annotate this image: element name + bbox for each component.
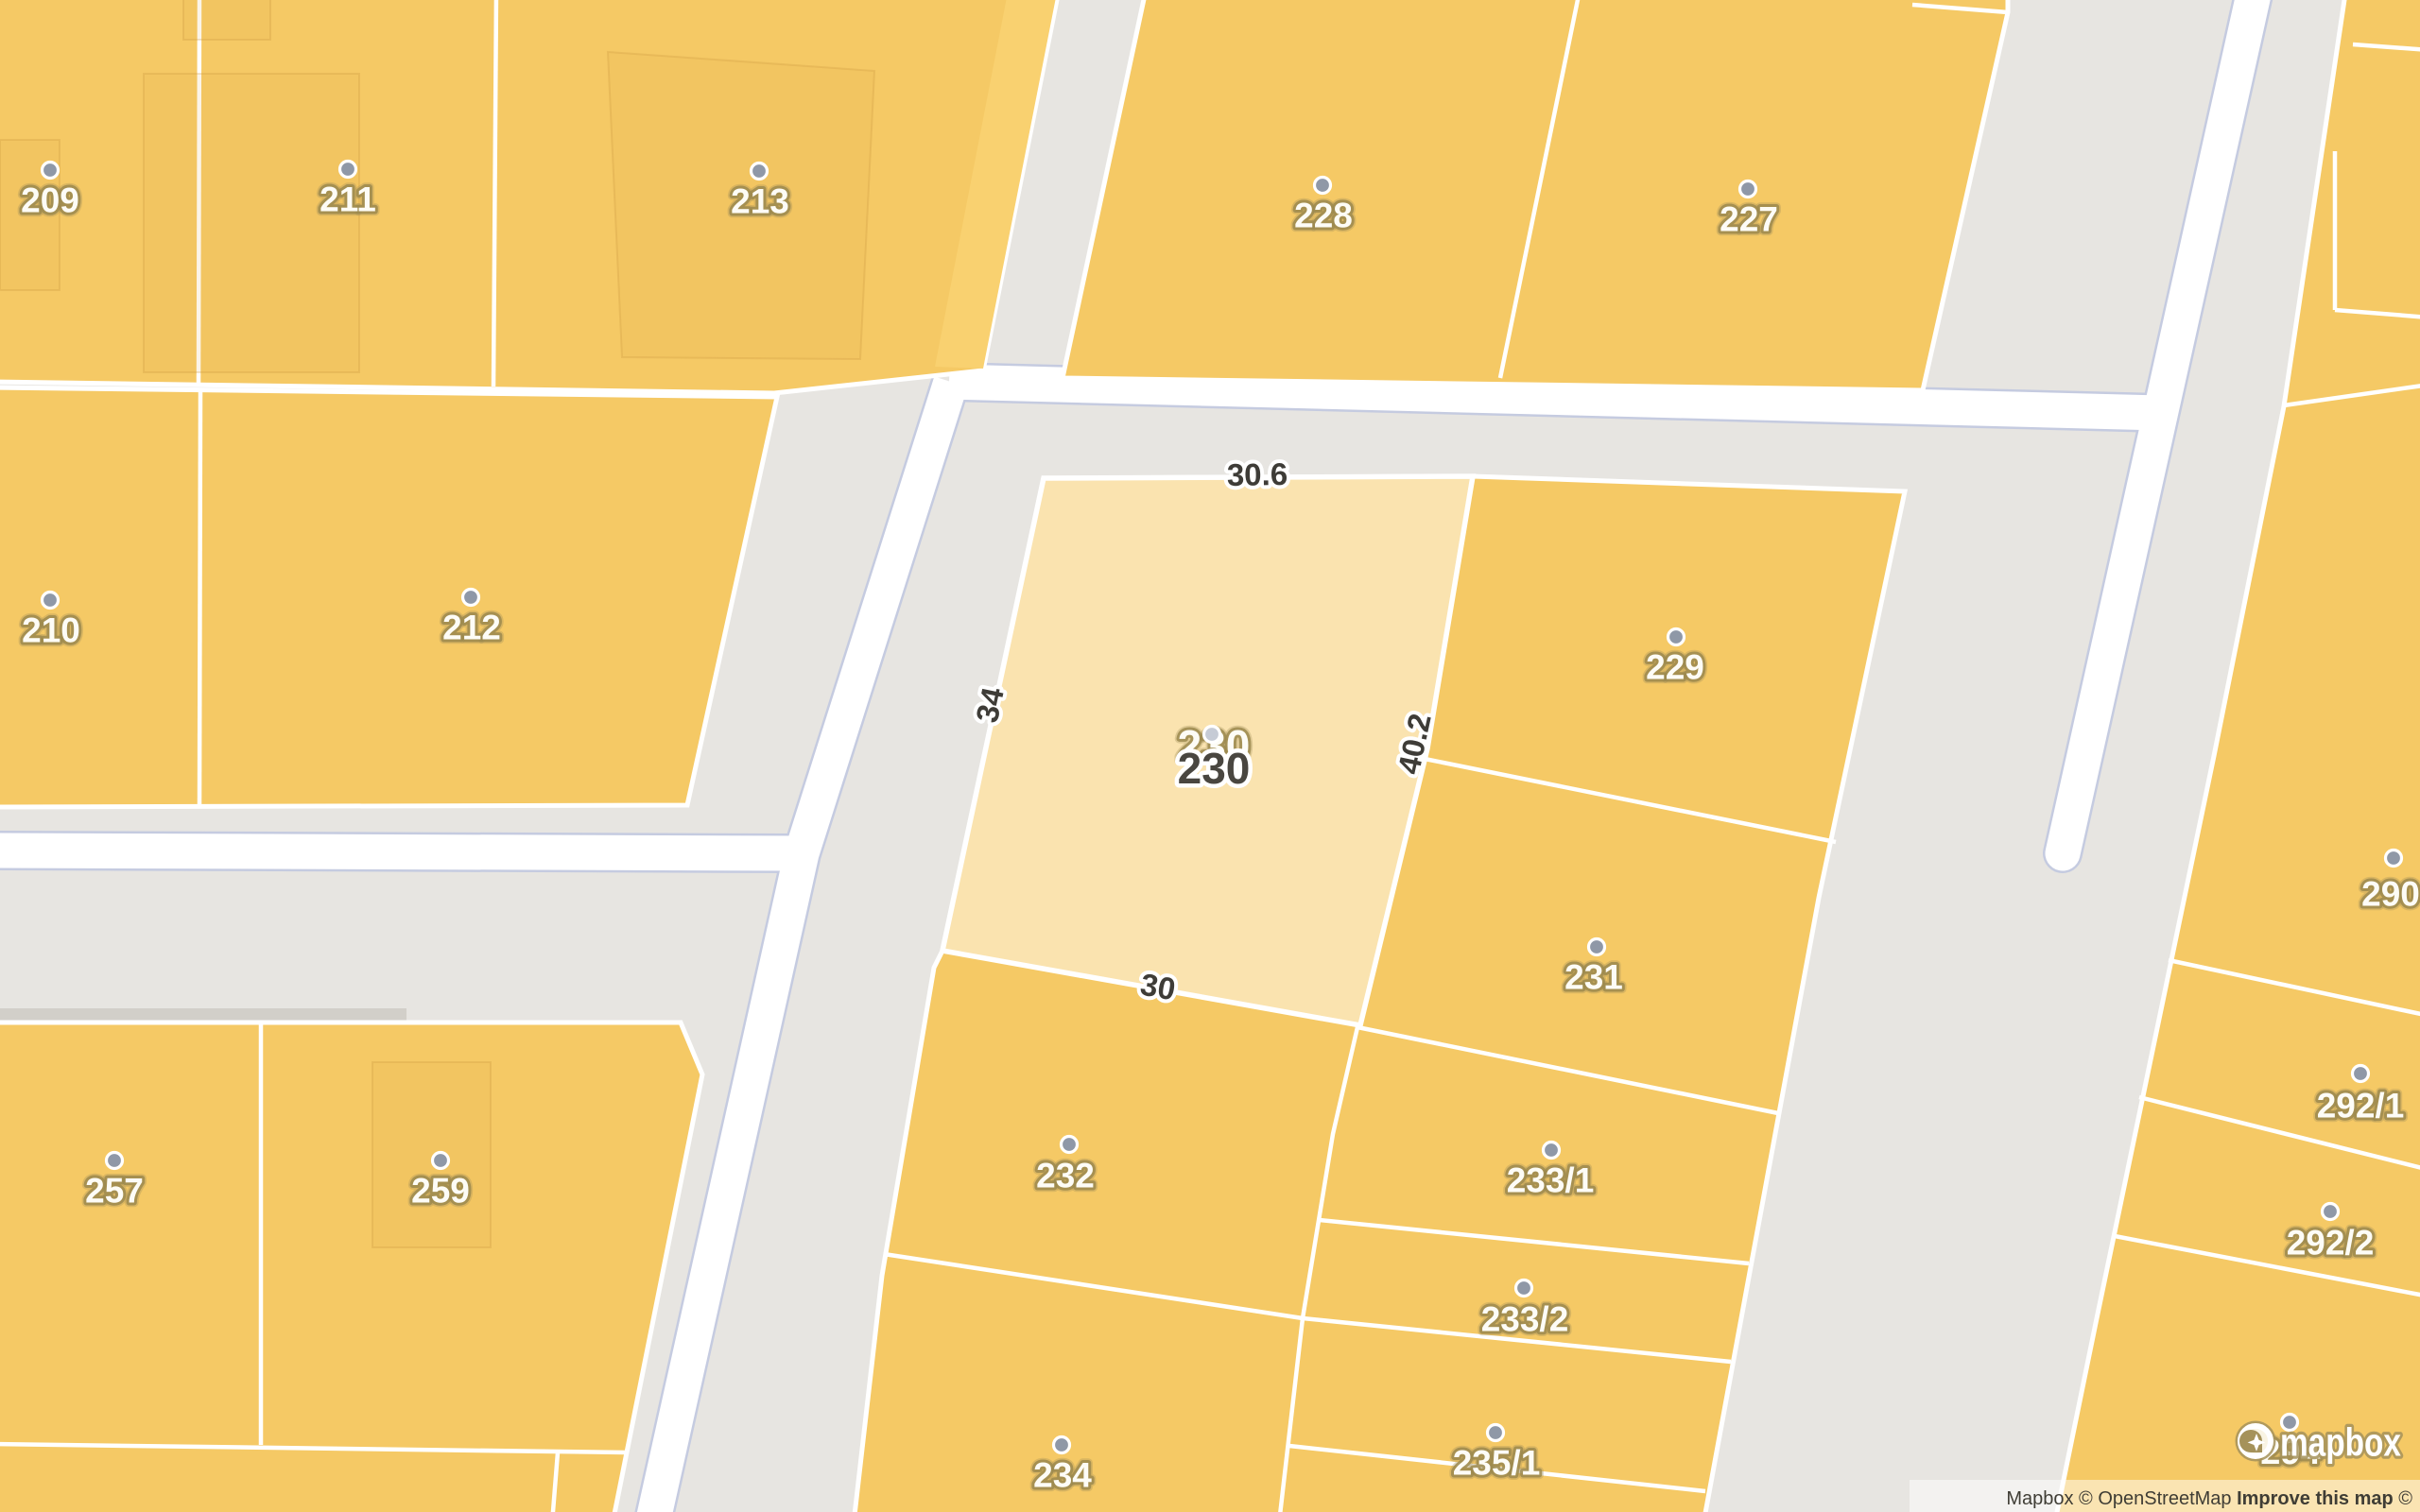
svg-text:228: 228 — [1294, 197, 1353, 235]
svg-text:233/2: 233/2 — [1481, 1300, 1569, 1339]
svg-text:232: 232 — [1036, 1157, 1095, 1195]
svg-text:213: 213 — [731, 182, 789, 221]
svg-text:30: 30 — [1138, 967, 1179, 1007]
svg-text:210: 210 — [22, 611, 80, 650]
svg-text:227: 227 — [1720, 200, 1778, 239]
svg-text:259: 259 — [411, 1172, 470, 1211]
svg-text:235/1: 235/1 — [1453, 1444, 1541, 1483]
svg-text:234: 234 — [1033, 1456, 1092, 1495]
svg-text:257: 257 — [85, 1172, 144, 1211]
svg-text:Mapbox © OpenStreetMap Improve: Mapbox © OpenStreetMap Improve this map … — [2006, 1488, 2412, 1509]
svg-text:290: 290 — [2361, 875, 2420, 914]
svg-text:229: 229 — [1646, 648, 1704, 687]
svg-text:212: 212 — [442, 609, 501, 647]
svg-text:292/1: 292/1 — [2317, 1087, 2405, 1125]
svg-text:mapbox: mapbox — [2280, 1420, 2402, 1465]
svg-text:231: 231 — [1564, 958, 1623, 997]
svg-text:30.6: 30.6 — [1227, 456, 1288, 492]
svg-text:292/2: 292/2 — [2287, 1224, 2375, 1263]
svg-text:233/1: 233/1 — [1507, 1161, 1595, 1200]
svg-text:211: 211 — [320, 180, 376, 219]
svg-text:209: 209 — [21, 181, 79, 220]
svg-text:230: 230 — [1178, 744, 1251, 793]
